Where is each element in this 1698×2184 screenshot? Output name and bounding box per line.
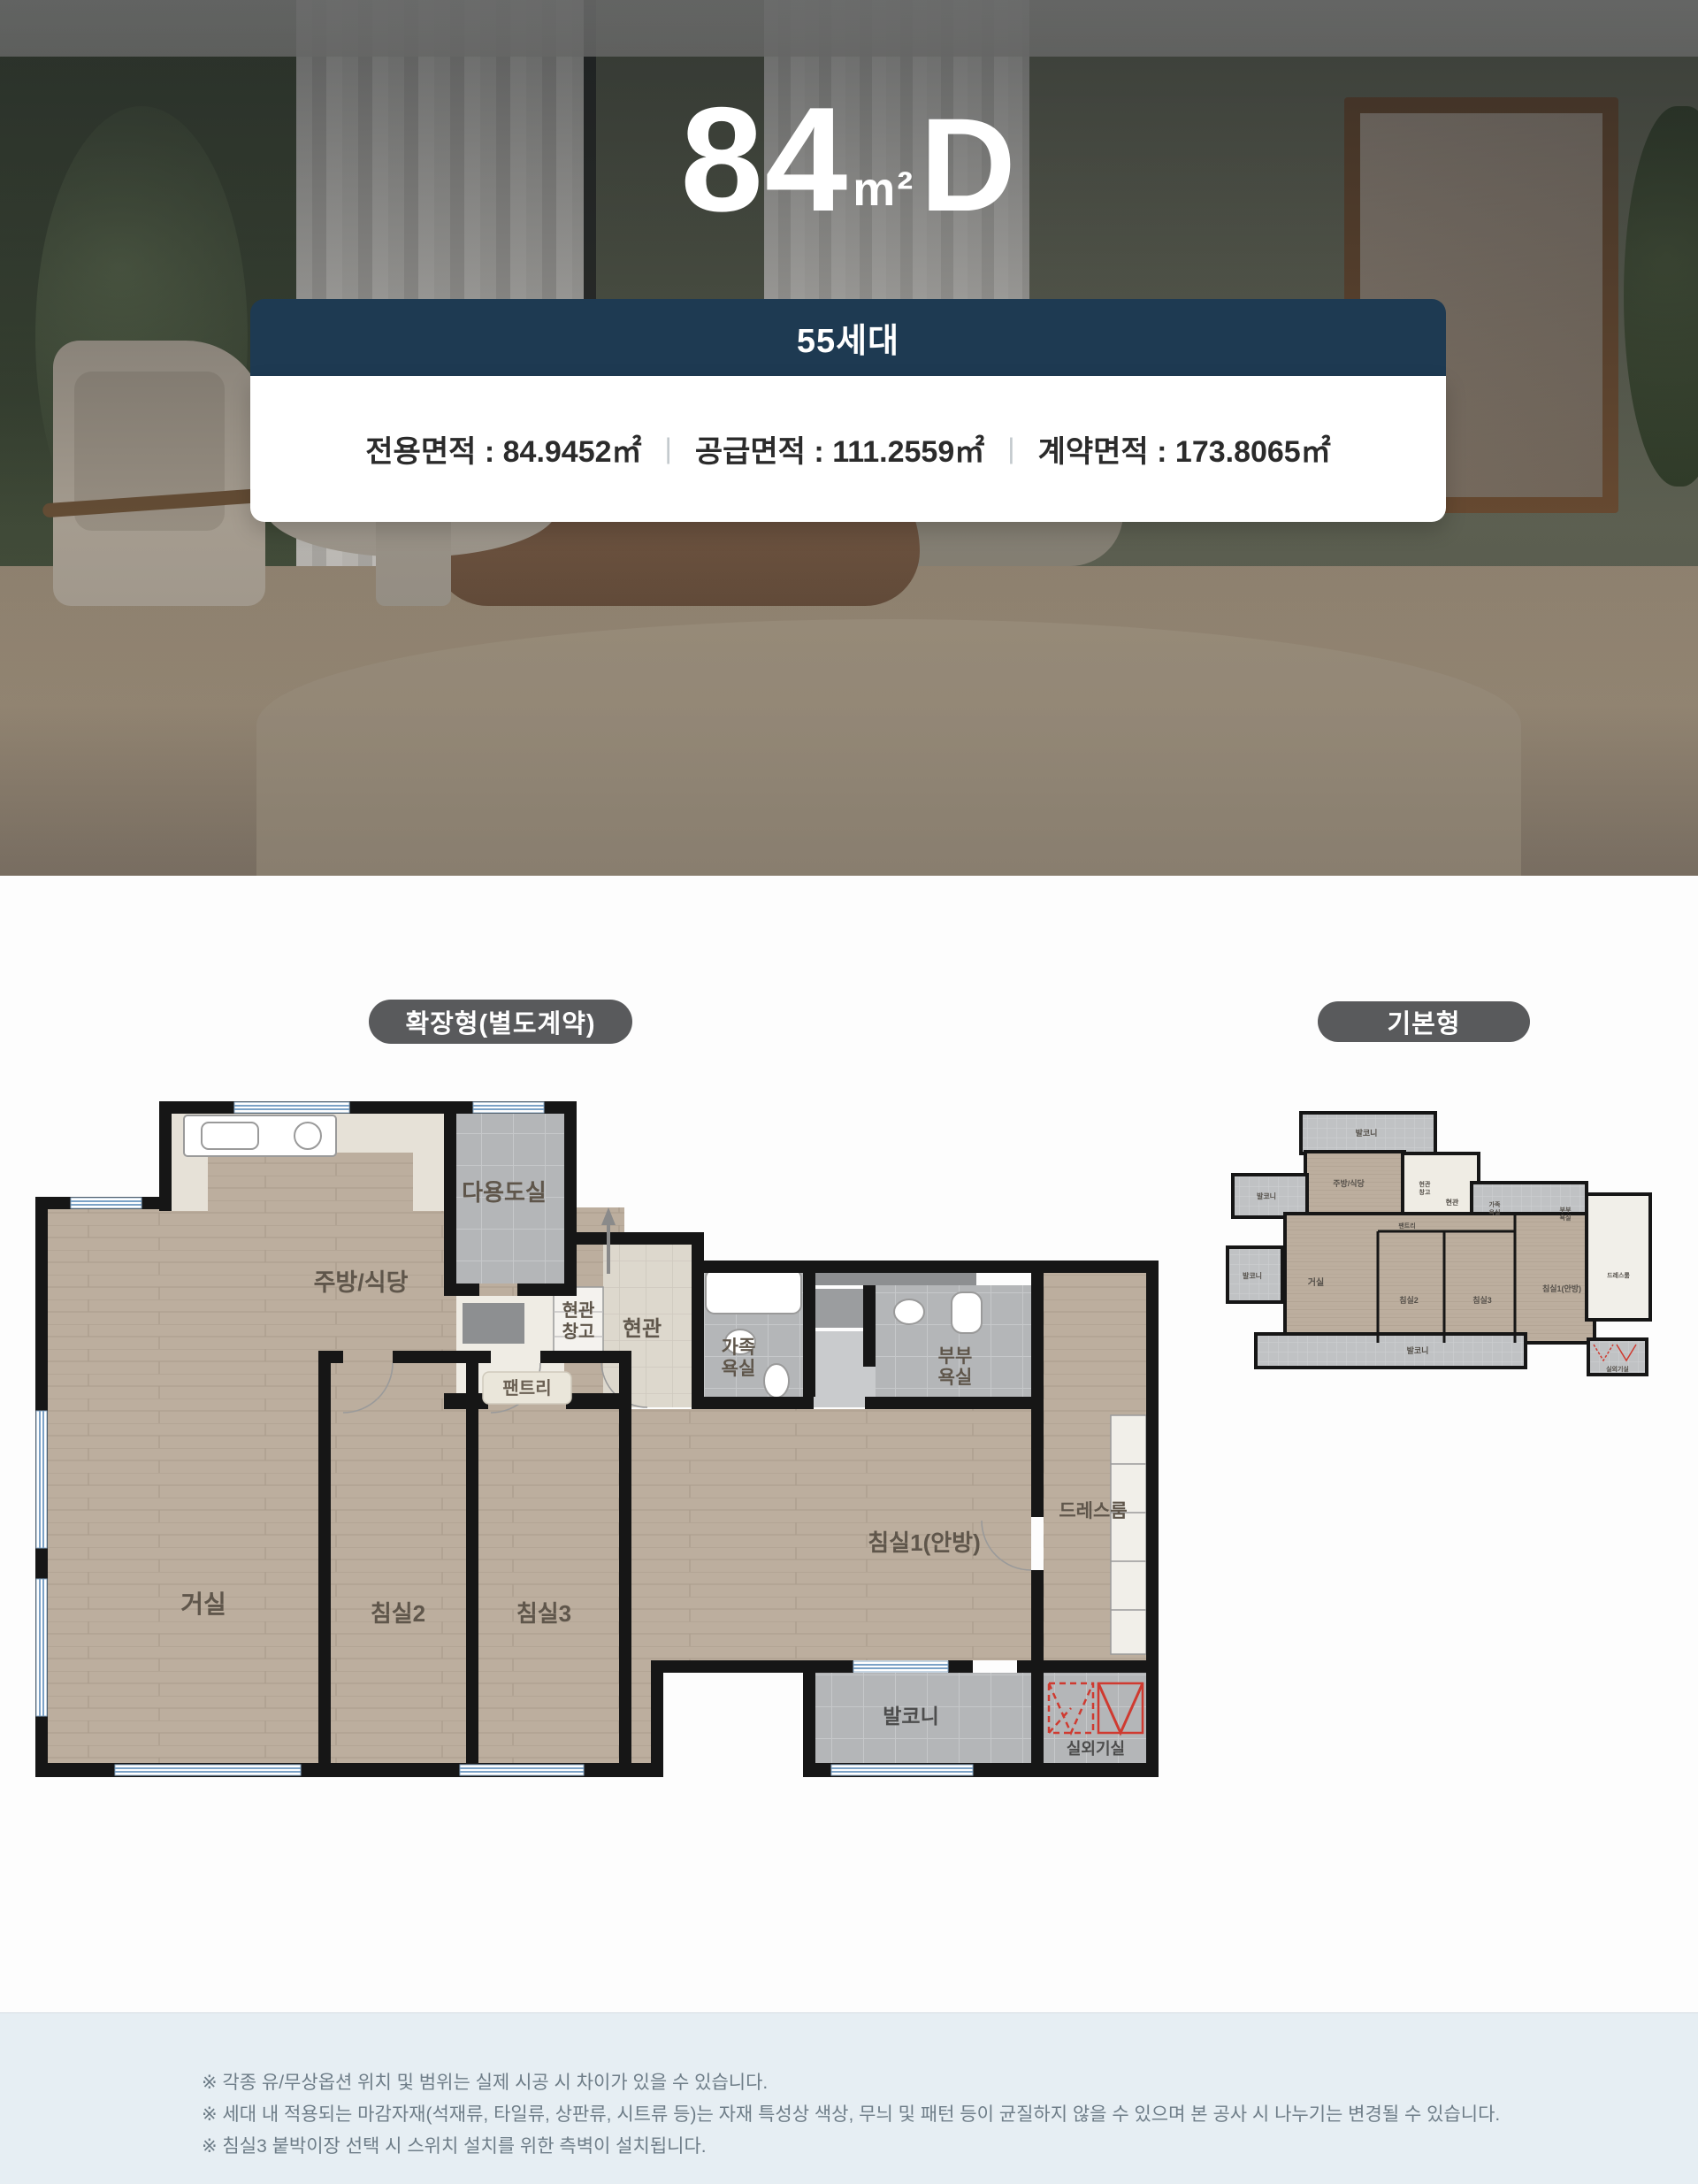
mini-label-balcony-left: 발코니 (1257, 1192, 1276, 1200)
label-master-bath-2: 욕실 (938, 1368, 973, 1388)
window-utility-top (473, 1102, 544, 1113)
label-entry: 현관 (623, 1317, 662, 1341)
window-living-top (71, 1198, 141, 1208)
window-kitchen-top (234, 1102, 349, 1113)
label-kitchen: 주방/식당 (314, 1269, 409, 1296)
basic-floorplan: 발코니 주방/식당 발코니 현관 창고 현관 가족 욕실 부부 욕실 팬트리 거… (1210, 1099, 1663, 1380)
area-info-card: 전용면적 : 84.9452㎡ | 공급면적 : 111.2559㎡ | 계약면… (250, 376, 1446, 522)
mini-label-balcony-top: 발코니 (1356, 1128, 1378, 1138)
mini-living-bedrooms (1285, 1214, 1595, 1343)
mini-label-family-bath-1: 가족 (1489, 1200, 1501, 1208)
floorplan-section: 확장형(별도계약) 기본형 (0, 876, 1698, 2012)
mini-label-kitchen: 주방/식당 (1333, 1178, 1365, 1188)
mini-label-bedroom2: 침실2 (1399, 1295, 1419, 1305)
area-separator-2: | (1007, 433, 1014, 465)
extended-floorplan: 다용도실 주방/식당 현관 창고 현관 팬트리 가족 욕실 부부 욕실 드레스룸… (35, 1101, 1159, 1796)
floors (48, 1114, 1146, 1763)
window-balcony-bottom (831, 1765, 973, 1775)
window-balcony-top (853, 1661, 948, 1672)
mini-label-pantry: 팬트리 (1398, 1222, 1415, 1230)
label-bedroom1: 침실1(안방) (868, 1529, 980, 1556)
dressroom-shelves (1111, 1415, 1146, 1654)
label-family-bath-2: 욕실 (722, 1359, 756, 1379)
mini-entry-zone (1403, 1153, 1479, 1219)
master-bath-toilet (952, 1292, 982, 1333)
label-bedroom2: 침실2 (371, 1600, 425, 1627)
label-dressroom: 드레스룸 (1059, 1501, 1127, 1521)
mini-floors (1228, 1113, 1650, 1375)
mini-label-dressroom: 드레스룸 (1607, 1271, 1630, 1279)
footer-notes: ※ 각종 유/무상옵션 위치 및 범위는 실제 시공 시 차이가 있을 수 있습… (0, 2012, 1698, 2184)
mini-label-balcony-bottom: 발코니 (1407, 1345, 1429, 1355)
mini-label-master-bath-1: 부부 (1560, 1206, 1572, 1214)
mini-label-master-bath-2: 욕실 (1560, 1214, 1572, 1222)
title-type-letter: D (920, 90, 1017, 239)
title-unit: m² (853, 163, 914, 216)
mini-label-entry: 현관 (1446, 1198, 1459, 1207)
area-exclusive: 전용면적 : 84.9452㎡ (365, 427, 641, 471)
window-left-lower (36, 1579, 47, 1716)
area-contract: 계약면적 : 173.8065㎡ (1038, 427, 1331, 471)
label-living: 거실 (180, 1590, 226, 1618)
mini-label-living: 거실 (1308, 1276, 1324, 1288)
master-bath-sink (894, 1299, 924, 1324)
label-utility: 다용도실 (462, 1179, 547, 1206)
footer-note-2: ※ 세대 내 적용되는 마감자재(석재류, 타일류, 상판류, 시트류 등)는 … (202, 2100, 1500, 2127)
family-bath-toilet (764, 1364, 789, 1398)
window-bedroom3-bottom (460, 1765, 584, 1775)
mini-label-bedroom3: 침실3 (1472, 1295, 1492, 1305)
households-badge: 55세대 (250, 299, 1446, 376)
kitchen-sink (202, 1123, 258, 1149)
footer-note-3: ※ 침실3 붙박이장 선택 시 스위치 설치를 위한 측벽이 설치됩니다. (202, 2132, 707, 2158)
unit-type-title: 84m²D (0, 85, 1698, 234)
label-master-bath-1: 부부 (938, 1346, 973, 1367)
label-entry-storage-2: 창고 (562, 1322, 595, 1342)
basic-plan-badge-label: 기본형 (1387, 1003, 1460, 1040)
mini-label-ac-room: 실외기실 (1606, 1365, 1629, 1373)
fridge-closet-block (463, 1303, 524, 1344)
label-bedroom3: 침실3 (516, 1600, 571, 1627)
mini-label-family-bath-2: 욕실 (1489, 1208, 1501, 1216)
kitchen-wood-tongue (208, 1153, 413, 1211)
kitchen-burner (294, 1123, 321, 1149)
basic-plan-badge: 기본형 (1318, 1001, 1530, 1042)
window-living-bottom (115, 1765, 301, 1775)
label-family-bath-1: 가족 (722, 1337, 756, 1358)
mini-label-bedroom1: 침실1(안방) (1542, 1284, 1581, 1293)
label-ac-room: 실외기실 (1067, 1740, 1125, 1758)
label-pantry: 팬트리 (502, 1378, 551, 1399)
mini-dressroom (1587, 1194, 1650, 1320)
hero-photo: 84m²D 55세대 전용면적 : 84.9452㎡ | 공급면적 : 111.… (0, 0, 1698, 876)
households-badge-label: 55세대 (797, 313, 899, 362)
area-supply: 공급면적 : 111.2559㎡ (695, 427, 984, 471)
window-left-upper (36, 1411, 47, 1548)
extended-plan-badge-label: 확장형(별도계약) (405, 1003, 595, 1040)
mini-label-entry-storage-1: 현관 (1419, 1180, 1431, 1188)
label-entry-storage-1: 현관 (562, 1300, 595, 1321)
mini-label-entry-storage-2: 창고 (1419, 1188, 1431, 1196)
label-balcony: 발코니 (883, 1705, 938, 1728)
bathtub (706, 1269, 801, 1314)
extended-plan-badge: 확장형(별도계약) (369, 1000, 632, 1044)
page: 84m²D 55세대 전용면적 : 84.9452㎡ | 공급면적 : 111.… (0, 0, 1698, 2184)
mini-balcony-bottom (1256, 1334, 1526, 1368)
mini-label-balcony-left2: 발코니 (1243, 1271, 1262, 1280)
title-number: 84 (680, 76, 849, 242)
area-separator-1: | (665, 433, 672, 465)
footer-note-1: ※ 각종 유/무상옵션 위치 및 범위는 실제 시공 시 차이가 있을 수 있습… (202, 2068, 768, 2095)
